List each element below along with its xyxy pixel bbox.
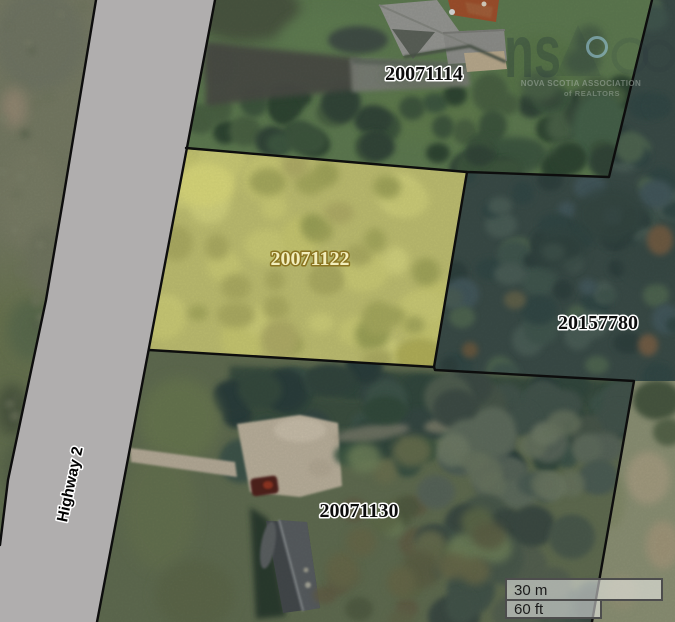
svg-text:20071114: 20071114 <box>385 63 463 85</box>
svg-text:of REALTORS: of REALTORS <box>564 89 620 98</box>
svg-text:60 ft: 60 ft <box>514 601 544 618</box>
svg-text:20071122: 20071122 <box>271 248 350 270</box>
svg-text:30 m: 30 m <box>514 582 547 599</box>
svg-text:20157780: 20157780 <box>558 312 638 334</box>
svg-text:20071130: 20071130 <box>320 500 399 522</box>
svg-text:NOVA SCOTIA ASSOCIATION: NOVA SCOTIA ASSOCIATION <box>521 79 641 88</box>
